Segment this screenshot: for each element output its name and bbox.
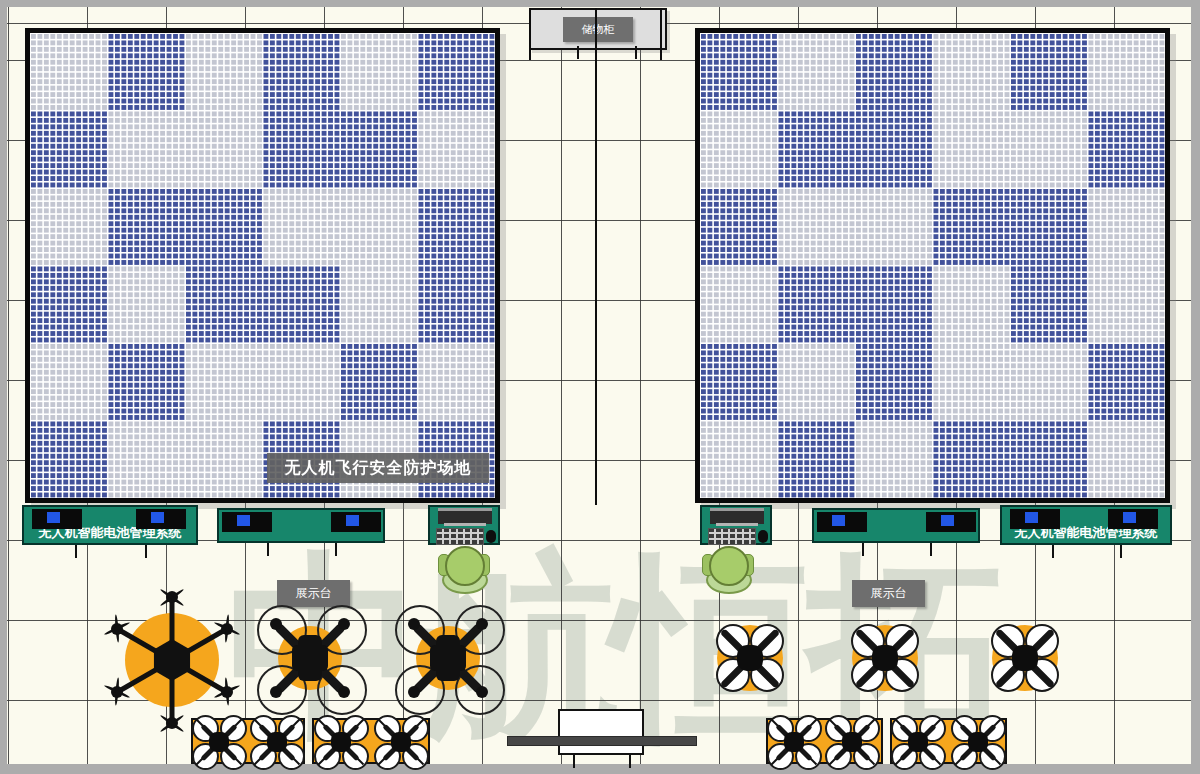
laptop-screen bbox=[832, 515, 845, 526]
table-leg bbox=[335, 543, 337, 556]
drone-hub bbox=[267, 732, 287, 752]
monitor-icon bbox=[438, 508, 492, 524]
arm-cap bbox=[270, 686, 282, 698]
person-head bbox=[709, 546, 749, 586]
control-desk-right bbox=[700, 505, 772, 545]
mini-drone bbox=[249, 714, 305, 770]
table-leg bbox=[573, 755, 575, 768]
wall-line-right bbox=[660, 8, 662, 60]
table-leg bbox=[629, 755, 631, 768]
side-table bbox=[558, 709, 644, 755]
battery-table-right: 无人机智能电池管理系统 bbox=[1000, 505, 1172, 545]
hexacopter-drone bbox=[97, 585, 247, 735]
drone-hub bbox=[292, 645, 328, 671]
monitor-icon bbox=[710, 508, 764, 524]
arm-cap bbox=[476, 618, 488, 630]
table-leg bbox=[930, 543, 932, 556]
mouse-icon bbox=[486, 530, 496, 543]
operator-right bbox=[704, 546, 752, 592]
floor-plan: 中航恒拓 无人机飞行安全防护场地 储物柜 无人机智能电池管理系统 无人机智能电池… bbox=[0, 0, 1200, 774]
mini-drone bbox=[950, 714, 1006, 770]
laptop-screen bbox=[151, 512, 164, 523]
arm-cap bbox=[338, 686, 350, 698]
table-leg bbox=[577, 46, 579, 59]
laptop-icon bbox=[1010, 509, 1060, 529]
entrance-bar bbox=[507, 736, 697, 746]
arm-cap bbox=[476, 686, 488, 698]
mini-drone bbox=[824, 714, 880, 770]
control-desk-left bbox=[428, 505, 500, 545]
quadcopter-drone bbox=[692, 600, 808, 716]
laptop-icon bbox=[32, 509, 82, 529]
drone-hub bbox=[391, 732, 411, 752]
arm-cap bbox=[338, 618, 350, 630]
wall-line-left bbox=[529, 8, 531, 60]
laptop-screen bbox=[1025, 512, 1038, 523]
table-leg bbox=[1120, 545, 1122, 558]
propeller-blade bbox=[224, 614, 229, 642]
laptop-screen bbox=[1123, 512, 1136, 523]
wall-line-center bbox=[595, 8, 597, 505]
drone-hub bbox=[908, 732, 928, 752]
mini-drone bbox=[766, 714, 822, 770]
arm-cap bbox=[408, 618, 420, 630]
mini-drone bbox=[191, 714, 247, 770]
laptop-icon bbox=[926, 512, 976, 532]
laptop-icon bbox=[817, 512, 867, 532]
battery-table-left: 无人机智能电池管理系统 bbox=[22, 505, 198, 545]
drone-hub bbox=[430, 645, 466, 671]
storage-cabinet: 储物柜 bbox=[529, 8, 667, 50]
table-leg bbox=[75, 545, 77, 558]
table-leg bbox=[145, 545, 147, 558]
drone-hub bbox=[872, 645, 898, 671]
laptop-screen bbox=[941, 515, 954, 526]
drone-hub bbox=[842, 732, 862, 752]
keyboard-icon bbox=[708, 528, 756, 545]
work-table-left bbox=[217, 508, 385, 543]
drone-hub bbox=[331, 732, 351, 752]
arm-cap bbox=[408, 686, 420, 698]
table-leg bbox=[635, 46, 637, 59]
flight-cage-right bbox=[695, 28, 1170, 503]
laptop-icon bbox=[331, 512, 381, 532]
quadcopter-drone bbox=[967, 600, 1083, 716]
flight-cage-left: 无人机飞行安全防护场地 bbox=[25, 28, 500, 503]
laptop-icon bbox=[1108, 509, 1158, 529]
drone-hub bbox=[784, 732, 804, 752]
table-leg bbox=[1052, 545, 1054, 558]
quadcopter-drone bbox=[386, 596, 510, 720]
drone-hub bbox=[1012, 645, 1038, 671]
flight-field-label: 无人机飞行安全防护场地 bbox=[267, 453, 489, 483]
table-leg bbox=[862, 543, 864, 556]
drone-hub bbox=[968, 732, 988, 752]
laptop-screen bbox=[346, 515, 359, 526]
storage-cabinet-label: 储物柜 bbox=[563, 17, 633, 42]
person-head bbox=[445, 546, 485, 586]
laptop-icon bbox=[222, 512, 272, 532]
mini-drone bbox=[890, 714, 946, 770]
quadcopter-drone bbox=[248, 596, 372, 720]
operator-left bbox=[440, 546, 488, 592]
monitor-stand bbox=[716, 523, 758, 526]
mouse-icon bbox=[758, 530, 768, 543]
arm-cap bbox=[270, 618, 282, 630]
table-leg bbox=[267, 543, 269, 556]
cage-net-pattern-right bbox=[700, 33, 1165, 498]
keyboard-icon bbox=[436, 528, 484, 545]
drone-hub bbox=[209, 732, 229, 752]
drone-hub bbox=[737, 645, 763, 671]
laptop-screen bbox=[47, 512, 60, 523]
work-table-right bbox=[812, 508, 980, 543]
monitor-stand bbox=[444, 523, 486, 526]
quadcopter-drone bbox=[827, 600, 943, 716]
laptop-icon bbox=[136, 509, 186, 529]
cage-net-pattern-left bbox=[30, 33, 495, 498]
laptop-screen bbox=[237, 515, 250, 526]
mini-drone bbox=[313, 714, 369, 770]
mini-drone bbox=[373, 714, 429, 770]
